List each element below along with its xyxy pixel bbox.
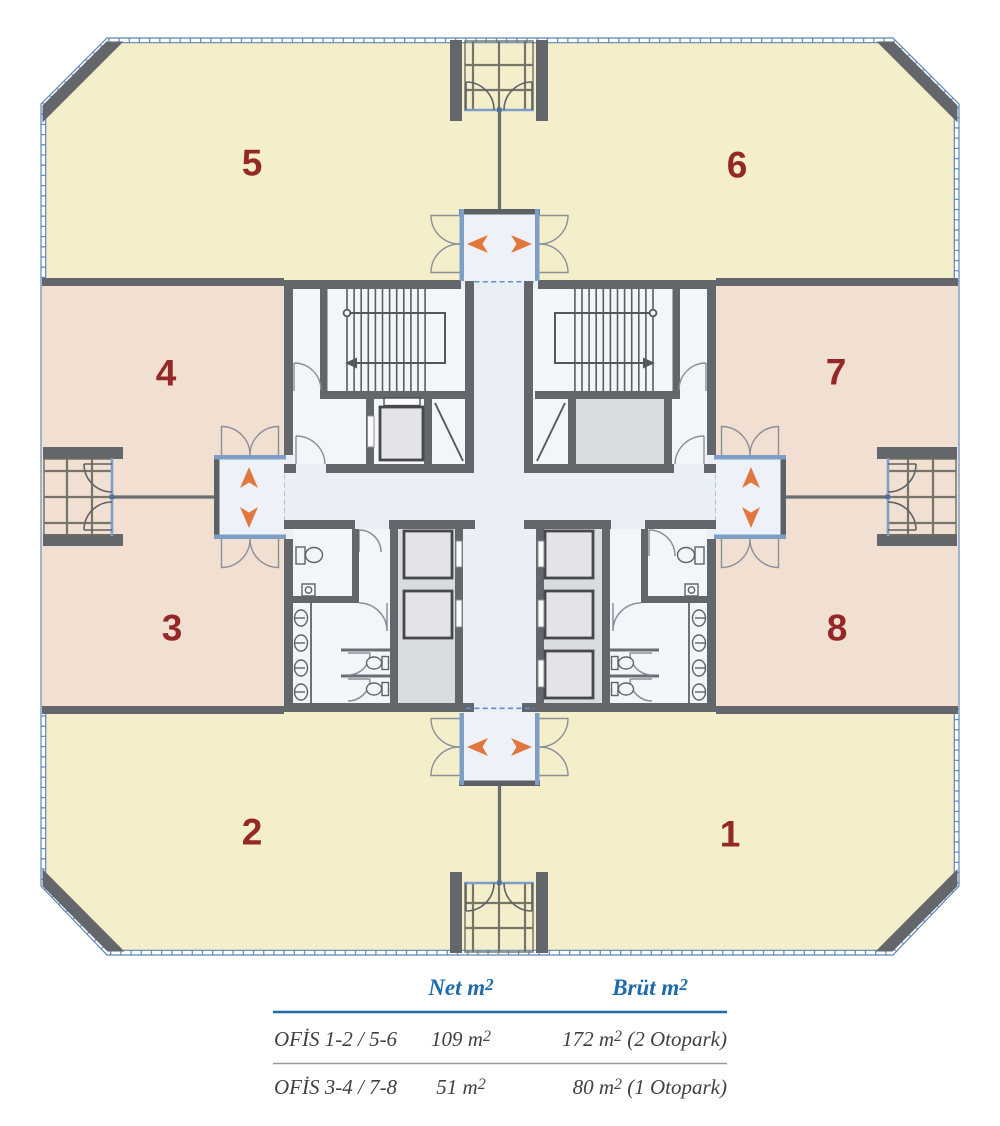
svg-text:OFİS 1-2 / 5-6: OFİS 1-2 / 5-6	[274, 1027, 398, 1051]
svg-text:2: 2	[242, 812, 263, 853]
svg-text:80 m2 (1 Otopark): 80 m2 (1 Otopark)	[573, 1075, 727, 1099]
svg-text:8: 8	[827, 608, 848, 649]
svg-text:7: 7	[826, 352, 847, 393]
svg-text:4: 4	[156, 353, 177, 394]
svg-text:172 m2 (2 Otopark): 172 m2 (2 Otopark)	[562, 1027, 727, 1051]
svg-text:1: 1	[720, 814, 741, 855]
svg-text:3: 3	[162, 608, 183, 649]
svg-text:6: 6	[727, 145, 748, 186]
svg-text:5: 5	[242, 143, 263, 184]
svg-text:Brüt m2: Brüt m2	[611, 975, 688, 1000]
svg-text:51 m2: 51 m2	[436, 1075, 485, 1099]
svg-text:109 m2: 109 m2	[431, 1027, 491, 1051]
svg-text:Net m2: Net m2	[427, 975, 494, 1000]
svg-text:OFİS 3-4 / 7-8: OFİS 3-4 / 7-8	[274, 1075, 398, 1099]
